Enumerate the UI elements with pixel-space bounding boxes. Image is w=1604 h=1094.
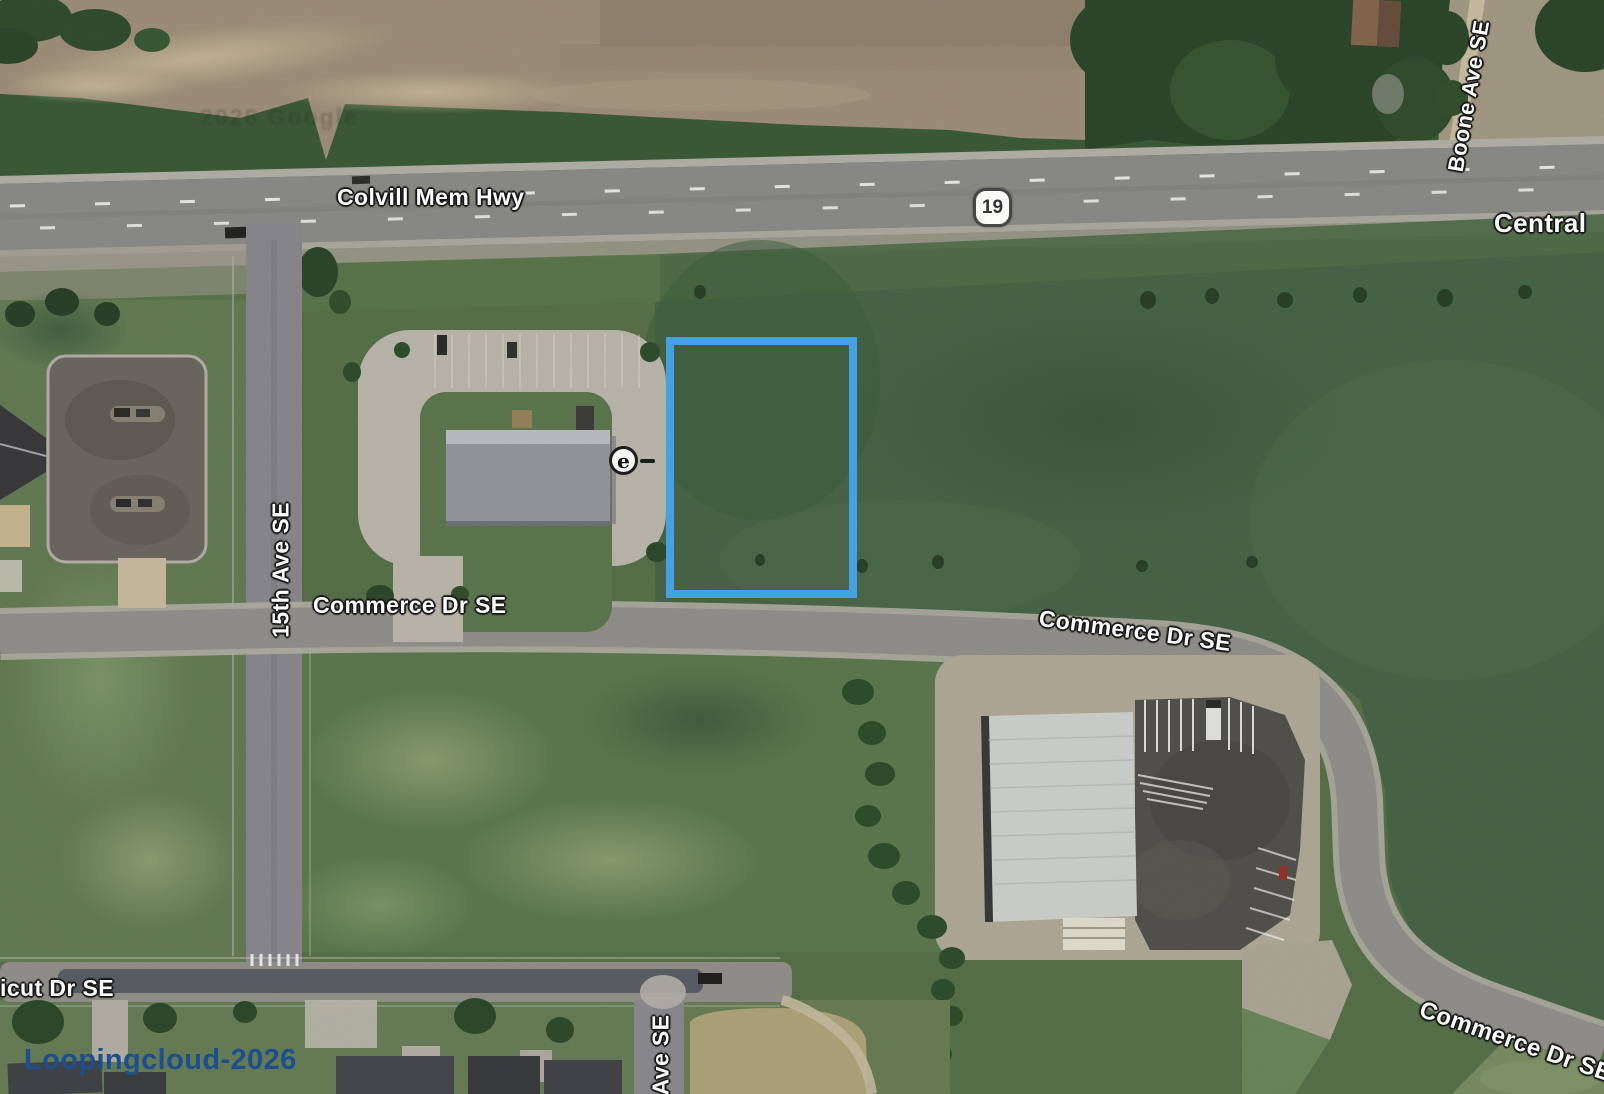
route-19-shield: 19 <box>973 188 1012 227</box>
route-19-number: 19 <box>982 197 1003 219</box>
loopingcloud-watermark: Loopingcloud-2026 <box>24 1044 297 1077</box>
e-logo-icon: e <box>609 446 638 475</box>
e-logo-dash <box>640 459 655 463</box>
road-label-central: Central <box>1494 210 1586 236</box>
road-label-15th-ave-se: 15th Ave SE <box>270 502 293 638</box>
noise-overlay <box>0 0 1604 1094</box>
road-label-connecticut-dr-se: ticut Dr SE <box>0 977 114 1000</box>
road-label-commerce-dr-se-west: Commerce Dr SE <box>313 594 507 617</box>
satellite-imagery <box>0 0 1604 1094</box>
road-label-colvill-mem-hwy: Colvill Mem Hwy <box>337 186 524 209</box>
satellite-map-canvas[interactable]: 2026 Google Colvill Mem Hwy 19 Central B… <box>0 0 1604 1094</box>
ghost-imagery-watermark: 2026 Google <box>200 104 359 131</box>
road-label-ave-se: Ave SE <box>650 1015 673 1094</box>
